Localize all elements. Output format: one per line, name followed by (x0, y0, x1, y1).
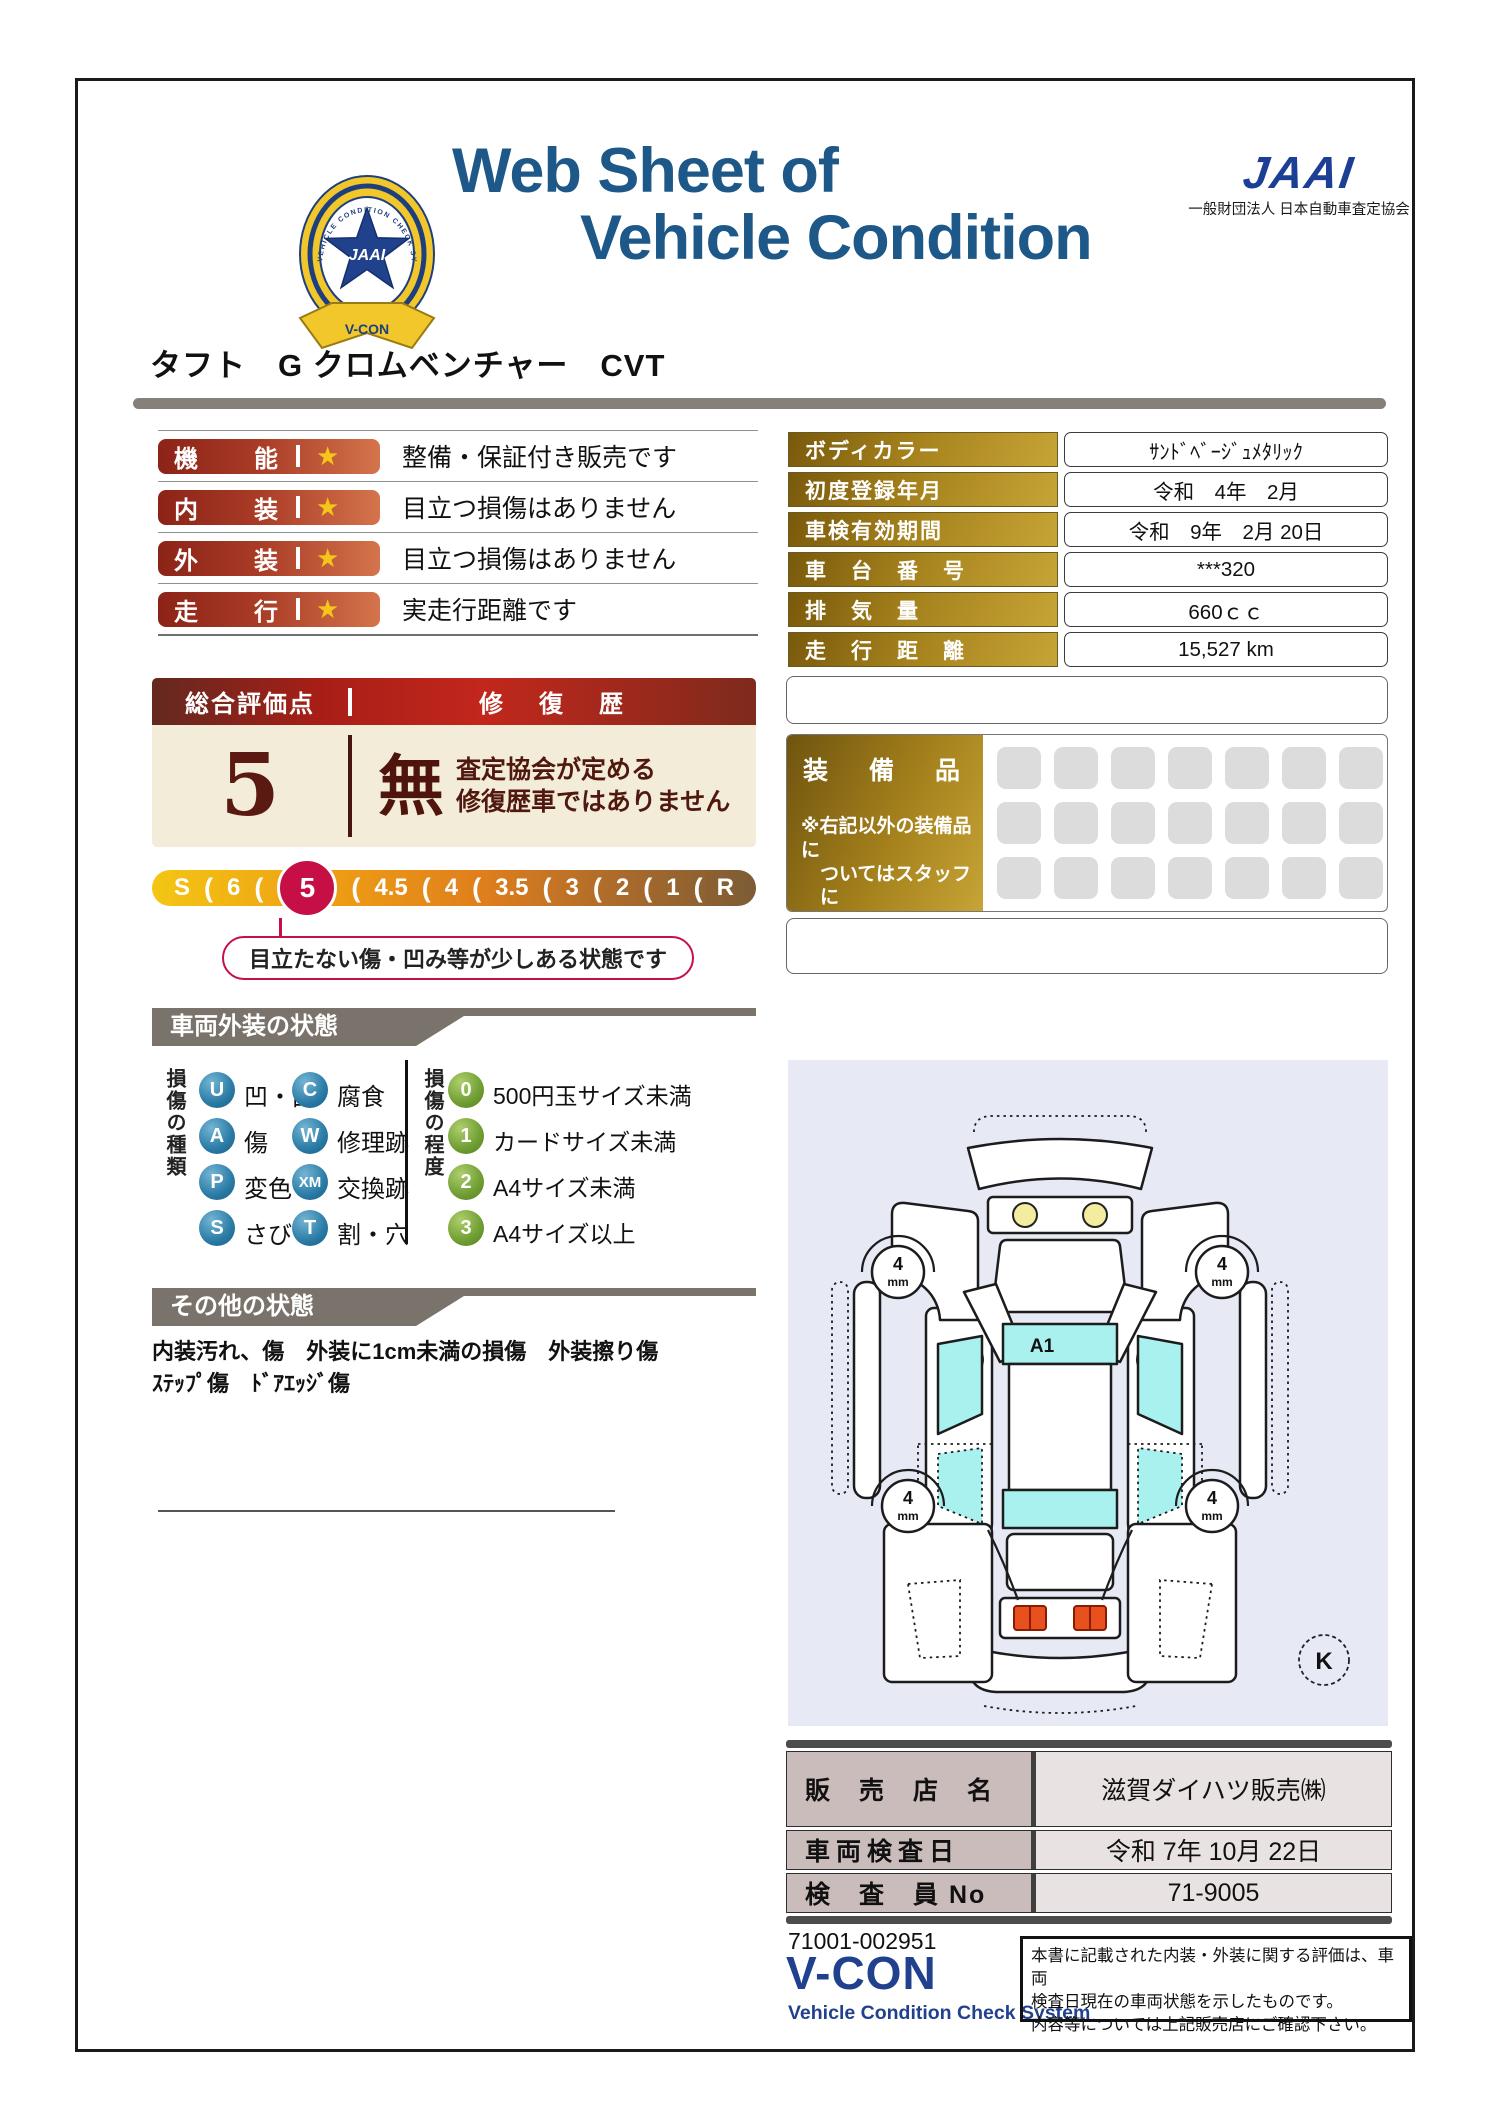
scale-separator: ( (694, 875, 703, 902)
info-value: 令和 4年 2月 (1064, 472, 1388, 507)
scale-separator: ( (643, 875, 652, 902)
body-separator (348, 735, 352, 837)
rating-badge: 外装 ★ (158, 541, 380, 576)
car-damage-diagram: A1 (788, 1060, 1388, 1726)
repair-history-value: 無 (378, 753, 444, 819)
damage-type-label: 割・穴 (337, 1215, 409, 1250)
empty-field-box (786, 918, 1388, 974)
info-label: 車 台 番 号 (788, 552, 1058, 587)
badge-ribbon-label: V-CON (345, 321, 389, 337)
equipment-slot (997, 747, 1041, 789)
disclaimer-box: 本書に記載された内装・外装に関する評価は、車両 検査日現在の車両状態を示したもの… (1020, 1936, 1412, 2022)
overall-score-panel: 総合評価点 修 復 歴 5 無 査定協会が定める 修復歴車ではありません (152, 678, 756, 847)
equipment-slot (1168, 747, 1212, 789)
star-icon: ★ (316, 545, 339, 571)
rating-description: 目立つ損傷はありません (402, 489, 676, 525)
notes-underline (158, 1510, 615, 1512)
rating-row-mileage: 走行 ★ 実走行距離です (158, 583, 758, 636)
page-title: Web Sheet of Vehicle Condition (452, 138, 1092, 272)
rating-list: 機能 ★ 整備・保証付き販売です 内装 ★ 目立つ損傷はありません 外装 ★ 目… (158, 430, 758, 636)
equipment-slot (997, 802, 1041, 844)
scale-separator: ( (254, 875, 263, 902)
svg-text:mm: mm (887, 1275, 908, 1289)
star-icon: ★ (316, 494, 339, 520)
damage-type-label: 修理跡 (337, 1123, 409, 1158)
vcon-badge-logo-icon: VEHICLE CONDITION CHECK SYSTEM JAAI V-CO… (292, 166, 442, 367)
damage-degree-icon: 1 (448, 1118, 484, 1154)
vehicle-info-table: ボディカラー ｻﾝﾄﾞﾍﾞｰｼﾞｭﾒﾀﾘｯｸ 初度登録年月 令和 4年 2月 車… (788, 432, 1388, 672)
scale-item: 4.5 (374, 876, 407, 900)
damage-type-label: 傷 (244, 1123, 268, 1158)
headlight-right-icon (1083, 1203, 1107, 1227)
scale-separator: ( (422, 875, 431, 902)
scale-item: 1 (666, 876, 679, 900)
table-row: 検 査 員 No 71-9005 (786, 1873, 1392, 1913)
equipment-note-line3: お尋ねください。 (801, 910, 973, 912)
damage-degree-label: カードサイズ未満 (493, 1123, 676, 1157)
scale-separator: ( (593, 875, 602, 902)
rating-badge: 機能 ★ (158, 439, 380, 474)
badge-star-label: JAAI (349, 247, 386, 264)
scale-separator: ( (542, 875, 551, 902)
info-value: ｻﾝﾄﾞﾍﾞｰｼﾞｭﾒﾀﾘｯｸ (1064, 432, 1388, 467)
damage-type-icon: XM (292, 1164, 328, 1200)
scale-pointer (279, 918, 282, 936)
rating-description: 目立つ損傷はありません (402, 540, 676, 576)
scale-item: 6 (227, 876, 240, 900)
scale-item-selected: 5 (277, 858, 337, 918)
equipment-slot (1168, 802, 1212, 844)
info-label: ボディカラー (788, 432, 1058, 467)
equipment-slot (1225, 857, 1269, 899)
info-label: 初度登録年月 (788, 472, 1058, 507)
badge-separator (296, 547, 300, 569)
equipment-note-line1: ※右記以外の装備品に (801, 815, 973, 863)
inspection-date-value: 令和 7年 10月 22日 (1036, 1831, 1391, 1869)
equipment-label-panel: 装 備 品 ※右記以外の装備品に ついてはスタッフに お尋ねください。 (787, 735, 983, 911)
rating-badge: 走行 ★ (158, 592, 380, 627)
damage-legend: 損傷の種類 U 凹・曲 A 傷 P 変色 S さび C 腐食 W 修理跡 XM … (152, 1056, 756, 1256)
rating-label: 内 (174, 490, 198, 525)
info-value: 令和 9年 2月 20日 (1064, 512, 1388, 547)
table-row: 車検有効期間 令和 9年 2月 20日 (788, 512, 1388, 547)
rating-row-interior: 内装 ★ 目立つ損傷はありません (158, 481, 758, 532)
overall-score-title: 総合評価点 (152, 684, 348, 719)
info-label: 排 気 量 (788, 592, 1058, 627)
equipment-note-line2: ついてはスタッフに (801, 863, 973, 911)
equipment-slot (1225, 747, 1269, 789)
damage-degree-icon: 3 (448, 1210, 484, 1246)
equipment-panel: 装 備 品 ※右記以外の装備品に ついてはスタッフに お尋ねください。 (786, 734, 1388, 912)
legend-divider (405, 1060, 408, 1244)
overall-score-body: 5 無 査定協会が定める 修復歴車ではありません (152, 725, 756, 847)
scale-item: 2 (616, 876, 629, 900)
overall-score-value: 5 (152, 743, 348, 829)
rating-row-function: 機能 ★ 整備・保証付き販売です (158, 430, 758, 481)
equipment-grid (983, 735, 1388, 911)
disclaimer-line3: 内容等については上記販売店にご確認下さい。 (1031, 2014, 1401, 2037)
equipment-slot (1168, 857, 1212, 899)
equipment-slot (1111, 857, 1155, 899)
damage-type-icon: W (292, 1118, 328, 1154)
damage-type-label: さび (244, 1215, 292, 1250)
equipment-title: 装 備 品 (803, 751, 973, 787)
svg-text:mm: mm (1211, 1275, 1232, 1289)
svg-text:mm: mm (1201, 1509, 1222, 1523)
vcon-logo-text: V-CON (786, 1950, 937, 1996)
scale-item: S (174, 876, 190, 900)
inspector-no-label: 検 査 員 No (787, 1874, 1031, 1912)
equipment-slot (1054, 747, 1098, 789)
damage-degree-group-label: 損傷の程度 (418, 1068, 447, 1178)
damage-degree-icon: 0 (448, 1072, 484, 1108)
jaai-logo: JAAI 一般財団法人 日本自動車査定協会 (1178, 150, 1420, 219)
windshield-area (1003, 1324, 1117, 1364)
badge-separator (296, 445, 300, 467)
scale-separator: ( (204, 875, 213, 902)
title-line1: Web Sheet of (452, 138, 1092, 205)
damage-type-icon: U (199, 1072, 235, 1108)
rating-description: 実走行距離です (402, 591, 577, 627)
disclaimer-line2: 検査日現在の車両状態を示したものです。 (1031, 1991, 1401, 2014)
damage-type-icon: C (292, 1072, 328, 1108)
badge-separator (296, 598, 300, 620)
score-scale-bar: S ( 6 ( 5 ( 4.5 ( 4 ( 3.5 ( 3 ( 2 ( 1 ( … (152, 870, 756, 906)
table-top-bar (786, 1740, 1392, 1748)
dealer-table: 販 売 店 名 滋賀ダイハツ販売㈱ 車両検査日 令和 7年 10月 22日 検 … (786, 1740, 1392, 1924)
table-row: 車 台 番 号 ***320 (788, 552, 1388, 587)
scale-callout: 目立たない傷・凹み等が少しある状態です (222, 936, 694, 980)
dealer-value: 滋賀ダイハツ販売㈱ (1036, 1752, 1391, 1826)
damage-type-icon: T (292, 1210, 328, 1246)
rating-badge: 内装 ★ (158, 490, 380, 525)
header-divider (133, 398, 1386, 409)
other-condition-text: 内装汚れ、傷 外装に1cm未満の損傷 外装擦り傷 ｽﾃｯﾌﾟ傷 ﾄﾞｱｴｯｼﾞ傷 (152, 1336, 658, 1400)
table-row: 走 行 距 離 15,527 km (788, 632, 1388, 667)
info-value: 660ｃｃ (1064, 592, 1388, 627)
svg-text:K: K (1315, 1648, 1333, 1675)
damage-type-icon: S (199, 1210, 235, 1246)
svg-text:mm: mm (897, 1509, 918, 1523)
score-scale: S ( 6 ( 5 ( 4.5 ( 4 ( 3.5 ( 3 ( 2 ( 1 ( … (152, 858, 756, 983)
damage-type-icon: P (199, 1164, 235, 1200)
info-value: ***320 (1064, 552, 1388, 587)
scale-item: 3.5 (495, 876, 528, 900)
rear-window-area (1003, 1490, 1117, 1528)
damage-degree-label: A4サイズ以上 (493, 1215, 635, 1249)
rating-label: 装 (254, 541, 278, 576)
equipment-slot (1282, 802, 1326, 844)
svg-text:4: 4 (1207, 1488, 1217, 1508)
damage-type-label: 交換跡 (337, 1169, 409, 1204)
scale-item: 4 (445, 876, 458, 900)
scale-item: R (717, 876, 734, 900)
damage-type-label: 変色 (244, 1169, 292, 1204)
svg-text:4: 4 (903, 1488, 913, 1508)
damage-type-label: 腐食 (337, 1077, 385, 1112)
scale-item: 3 (565, 876, 578, 900)
headlight-left-icon (1013, 1203, 1037, 1227)
equipment-slot (1111, 747, 1155, 789)
equipment-slot (997, 857, 1041, 899)
vehicle-name: タフト G クロムベンチャー CVT (150, 340, 665, 385)
table-row: ボディカラー ｻﾝﾄﾞﾍﾞｰｼﾞｭﾒﾀﾘｯｸ (788, 432, 1388, 467)
equipment-note: ※右記以外の装備品に ついてはスタッフに お尋ねください。 (801, 815, 973, 912)
rating-label: 装 (254, 490, 278, 525)
equipment-slot (1225, 802, 1269, 844)
jaai-organization-name: 一般財団法人 日本自動車査定協会 (1178, 198, 1420, 219)
dealer-label: 販 売 店 名 (787, 1752, 1031, 1826)
jaai-logo-text: JAAI (1175, 150, 1423, 195)
windshield-label: A1 (1030, 1336, 1055, 1357)
table-row: 排 気 量 660ｃｃ (788, 592, 1388, 627)
rating-label: 能 (254, 439, 278, 474)
damage-degree-icon: 2 (448, 1164, 484, 1200)
equipment-slot (1054, 857, 1098, 899)
empty-field-box (786, 676, 1388, 724)
repair-note-line1: 査定協会が定める (456, 754, 730, 787)
info-label: 走 行 距 離 (788, 632, 1058, 667)
other-condition-line1: 内装汚れ、傷 外装に1cm未満の損傷 外装擦り傷 (152, 1336, 658, 1368)
scale-separator: ( (472, 875, 481, 902)
info-value: 15,527 km (1064, 632, 1388, 667)
equipment-slot (1111, 802, 1155, 844)
rating-label: 外 (174, 541, 198, 576)
equipment-slot (1339, 747, 1383, 789)
inspection-date-label: 車両検査日 (787, 1831, 1031, 1869)
equipment-slot (1339, 802, 1383, 844)
table-bottom-bar (786, 1916, 1392, 1924)
other-condition-line2: ｽﾃｯﾌﾟ傷 ﾄﾞｱｴｯｼﾞ傷 (152, 1368, 658, 1400)
info-label: 車検有効期間 (788, 512, 1058, 547)
rating-label: 行 (254, 592, 278, 627)
equipment-slot (1282, 747, 1326, 789)
repair-history-note: 査定協会が定める 修復歴車ではありません (456, 754, 730, 819)
disclaimer-line1: 本書に記載された内装・外装に関する評価は、車両 (1031, 1945, 1401, 1991)
damage-type-group-label: 損傷の種類 (160, 1068, 189, 1178)
star-icon: ★ (316, 596, 339, 622)
rating-description: 整備・保証付き販売です (402, 438, 677, 474)
repair-history-title: 修 復 歴 (352, 684, 756, 719)
equipment-slot (1054, 802, 1098, 844)
damage-type-icon: A (199, 1118, 235, 1154)
rating-label: 走 (174, 592, 198, 627)
title-line2: Vehicle Condition (580, 205, 1092, 272)
table-row: 車両検査日 令和 7年 10月 22日 (786, 1830, 1392, 1870)
inspector-no-value: 71-9005 (1036, 1874, 1391, 1912)
svg-text:4: 4 (1217, 1254, 1227, 1274)
star-icon: ★ (316, 443, 339, 469)
damage-degree-label: A4サイズ未満 (493, 1169, 635, 1203)
vehicle-condition-sheet: VEHICLE CONDITION CHECK SYSTEM JAAI V-CO… (0, 0, 1488, 2103)
damage-degree-label: 500円玉サイズ未満 (493, 1077, 692, 1111)
equipment-slot (1282, 857, 1326, 899)
table-row: 販 売 店 名 滋賀ダイハツ販売㈱ (786, 1751, 1392, 1827)
rating-label: 機 (174, 439, 198, 474)
table-row: 初度登録年月 令和 4年 2月 (788, 472, 1388, 507)
equipment-slot (1339, 857, 1383, 899)
scale-separator: ( (351, 875, 360, 902)
overall-score-header: 総合評価点 修 復 歴 (152, 678, 756, 725)
badge-separator (296, 496, 300, 518)
repair-note-line2: 修復歴車ではありません (456, 786, 730, 819)
rating-row-exterior: 外装 ★ 目立つ損傷はありません (158, 532, 758, 583)
svg-text:4: 4 (893, 1254, 903, 1274)
